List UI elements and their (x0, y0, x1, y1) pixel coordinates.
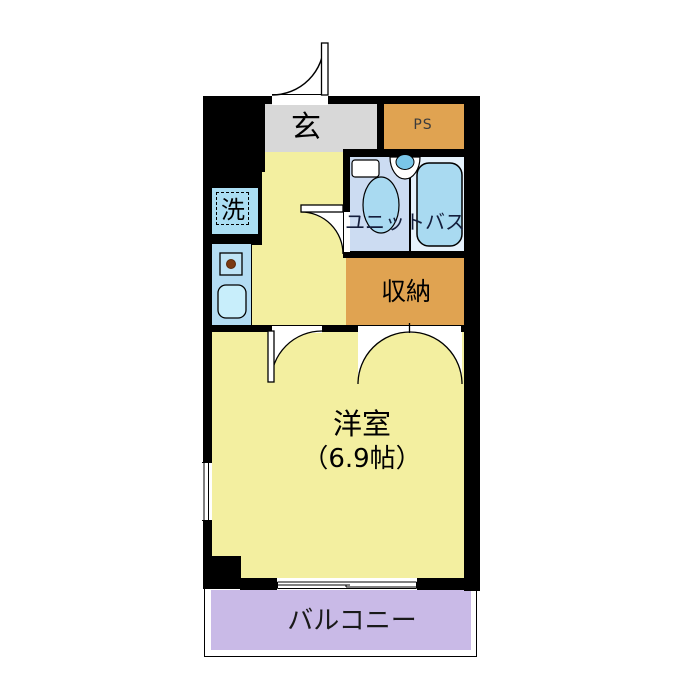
entrance-doorway (272, 94, 328, 105)
pipe-space-label: PS (382, 112, 464, 138)
pipe-space-label-text: PS (413, 118, 432, 132)
entrance-label: 玄 (256, 108, 356, 148)
wall-block-bottomleft (203, 556, 241, 589)
unit-bath-tub-zone (410, 155, 469, 255)
main-room-label-text: 洋室 (333, 410, 391, 439)
unit-bath-label-text: ユニットバス (345, 212, 465, 232)
main-room-size-text: （6.9帖） (302, 446, 421, 472)
balcony-label: バルコニー (242, 605, 462, 637)
laundry-label: 洗 (210, 188, 256, 232)
wall-ps-bottom (343, 149, 465, 157)
floorplan: 玄 PS ユニットバス 収納 洗 洋室 （6.9帖） バルコニー (0, 0, 700, 700)
laundry-label-text: 洗 (221, 198, 245, 222)
wall-unitbath-bottom (343, 251, 465, 258)
closet-doorway (358, 325, 461, 333)
storage-label: 収納 (346, 276, 466, 306)
entrance-door-arc-icon (272, 43, 324, 95)
wall-top (203, 96, 480, 104)
storage-label-text: 収納 (381, 279, 431, 304)
room-doorway (272, 325, 322, 333)
main-room-size-label: （6.9帖） (272, 443, 452, 475)
balcony-label-text: バルコニー (287, 608, 416, 634)
entrance-door-leaf-icon (322, 43, 329, 95)
entrance-label-text: 玄 (291, 113, 321, 143)
left-window-opening (202, 462, 212, 521)
kitchen-counter (211, 243, 252, 327)
balcony-window-opening (277, 578, 417, 590)
unit-bath-toilet-zone (346, 155, 410, 255)
wall-right (464, 96, 480, 591)
unit-bath-label: ユニットバス (343, 209, 467, 235)
main-room-label: 洋室 (282, 407, 442, 441)
